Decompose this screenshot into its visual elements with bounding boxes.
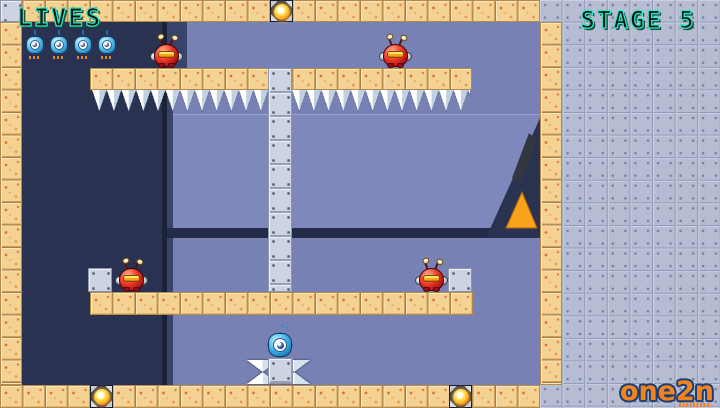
gold-orb-top [270,0,293,22]
enemy-visor [387,51,404,58]
life-icon [72,34,93,55]
enemy-visor [123,275,140,282]
life-mark [29,56,40,59]
game-screen: LIVES STAGE 5 one2n [0,0,720,408]
red-enemy-2 [381,41,410,68]
life-pupil [32,42,37,47]
lower-platform [90,292,473,315]
player-creature [266,331,294,359]
life-icon [96,34,117,55]
stage-label: STAGE 5 [558,6,718,34]
enemy-foot [123,287,130,292]
scene-shapes [0,0,720,408]
life-pupil [80,42,85,47]
enemy-foot [397,63,404,68]
life-pupil [104,42,109,47]
gold-orb-bottom-right [449,385,472,408]
lives-label: LIVES [17,3,102,32]
spring-plate [268,358,293,384]
life-icon [48,34,69,55]
metal-pillar [268,68,292,292]
ceiling-spikes-right [292,90,470,111]
metal-block-right [448,268,472,292]
enemy-foot [433,287,440,292]
enemy-foot [168,63,175,68]
enemy-visor [423,275,440,282]
enemy-foot [133,287,140,292]
red-enemy-3 [117,265,146,292]
border-right [540,22,562,385]
logo-text: one2n [620,378,714,405]
enemy-visor [158,51,175,58]
life-mark [53,56,64,59]
life-mark [101,56,112,59]
enemy-foot [387,63,394,68]
border-left [0,22,22,385]
enemy-foot [423,287,430,292]
ceiling-spikes-left [92,90,268,111]
life-icon [24,34,45,55]
player-antenna-dot [281,324,284,327]
logo-subtext-mark [679,403,711,407]
red-enemy-1 [152,41,181,68]
life-mark [77,56,88,59]
gold-orb-bottom-left [90,385,113,408]
player-pupil [277,342,284,349]
player-antenna-dot [286,327,288,329]
red-enemy-4 [417,265,446,292]
metal-block-left [88,268,112,292]
life-pupil [56,42,61,47]
enemy-foot [158,63,165,68]
